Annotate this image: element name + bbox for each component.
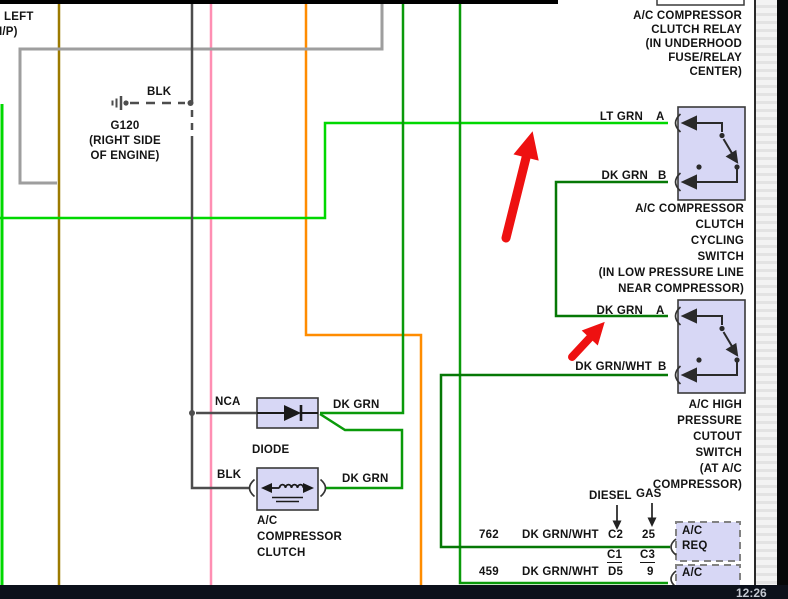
circuit-762: 762 xyxy=(479,529,499,541)
switch-pin-b-label: B xyxy=(658,361,667,373)
corner-label-left: LEFT xyxy=(4,11,34,23)
annotation-arrow-small xyxy=(564,314,613,364)
diode-out-label: DK GRN xyxy=(333,399,380,411)
clutch-blk-label: BLK xyxy=(217,469,241,481)
gas-connector-label: C3 xyxy=(640,549,655,563)
diode-label: DIODE xyxy=(252,444,289,456)
cutoff-component-box xyxy=(657,0,744,5)
ground-name-block: G120 (RIGHT SIDE OF ENGINE) xyxy=(55,119,195,164)
diesel-connector-label: C1 xyxy=(607,549,622,563)
player-bottom-bar xyxy=(0,585,788,599)
dk-grn-wht-wire xyxy=(441,375,670,547)
clutch-left-connector xyxy=(250,480,255,497)
switch-dk-grn-label: DK GRN xyxy=(596,305,643,317)
clutch-name-block: A/C COMPRESSOR CLUTCH xyxy=(257,513,342,561)
relay-title: A/C COMPRESSOR CLUTCH RELAY (IN UNDERHOO… xyxy=(633,9,742,79)
player-timestamp: 12:26 xyxy=(736,586,767,599)
annotation-arrow-large xyxy=(493,128,545,241)
ac-module-line1: A/C xyxy=(682,567,702,579)
ground-wire-label: BLK xyxy=(147,86,171,98)
dk-grn-label: DK GRN xyxy=(601,170,648,182)
clutch-right-connector xyxy=(321,480,326,497)
gas-column-header: GAS xyxy=(636,488,662,500)
dk-grn-wht-label: DK GRN/WHT xyxy=(575,361,652,373)
circuit-762-gas-pin: 25 xyxy=(642,529,655,541)
ground-splice-dot xyxy=(188,100,194,106)
wiring-diagram xyxy=(0,0,788,599)
clutch-out-label: DK GRN xyxy=(342,473,389,485)
ac-req-module-line2: REQ xyxy=(682,540,708,552)
right-crop-bar xyxy=(777,0,788,599)
nca-junction-dot xyxy=(189,410,195,416)
pressure-switch-title: A/C HIGH PRESSURE CUTOUT SWITCH (AT A/C … xyxy=(653,397,742,493)
video-frame: LEFT I/P) BLK G120 (RIGHT SIDE OF ENGINE… xyxy=(0,0,788,599)
ground-location-2: OF ENGINE) xyxy=(55,149,195,164)
cycling-switch-title: A/C COMPRESSOR CLUTCH CYCLING SWITCH (IN… xyxy=(599,201,744,297)
circuit-459-gas-pin: 9 xyxy=(647,566,654,578)
switch-pin-a-label: A xyxy=(656,305,665,317)
circuit-762-diesel-pin: C2 xyxy=(608,529,623,541)
column-arrows xyxy=(613,503,657,530)
ac-req-module-line1: A/C xyxy=(682,525,702,537)
ground-location-1: (RIGHT SIDE xyxy=(55,134,195,149)
ground-name: G120 xyxy=(55,119,195,134)
diesel-column-header: DIESEL xyxy=(589,490,632,502)
blk-wire-group xyxy=(113,4,258,488)
green-vertical-to-diode-wire xyxy=(320,4,403,413)
relay-pin-a-label: A xyxy=(656,111,665,123)
blk-vertical-main xyxy=(192,142,250,488)
top-crop-bar xyxy=(0,0,558,4)
lt-grn-label: LT GRN xyxy=(600,111,643,123)
right-margin-column xyxy=(756,0,777,585)
relay-pin-b-label: B xyxy=(658,170,667,182)
circuit-459-diesel-pin: D5 xyxy=(608,566,623,578)
circuit-459: 459 xyxy=(479,566,499,578)
circuit-459-color: DK GRN/WHT xyxy=(522,566,599,578)
ground-dot xyxy=(123,100,128,105)
nca-label: NCA xyxy=(215,396,241,408)
corner-label-ip: I/P) xyxy=(0,26,18,38)
circuit-762-color: DK GRN/WHT xyxy=(522,529,599,541)
